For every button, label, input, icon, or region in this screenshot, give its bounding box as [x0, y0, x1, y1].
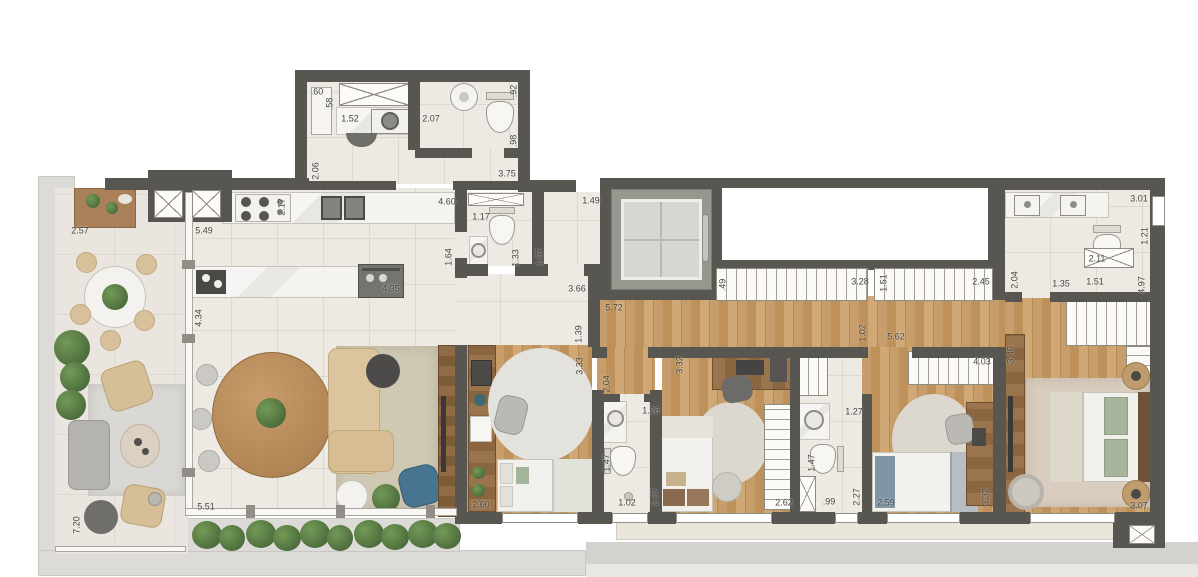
bedroom2-cushion [666, 472, 686, 486]
dimension-label: 2.45 [972, 278, 990, 287]
planter-plant-6 [327, 525, 353, 551]
bedroom2-pillow-2 [687, 489, 709, 506]
cooktop-pan-2 [214, 280, 222, 288]
sideboard-plant-2 [106, 202, 118, 214]
dimension-label: .99 [823, 498, 836, 507]
glass-wall-west [185, 192, 193, 512]
wall [415, 148, 472, 158]
wall [295, 70, 530, 82]
dimension-label: 5.51 [197, 503, 215, 512]
wall [295, 70, 307, 188]
dining-centerpiece [256, 398, 286, 428]
terrace-centerpiece [102, 284, 128, 310]
glass-mullion [182, 334, 195, 343]
tall-unit-handle [362, 268, 400, 271]
dimension-label: 2.17 [278, 198, 287, 216]
floor-plan-canvas: .60.581.522.07.92.982.063.754.602.575.49… [0, 0, 1198, 577]
dimension-label: 3.07 [1130, 502, 1148, 511]
wall [455, 190, 467, 232]
master-entry-closet [1066, 301, 1152, 346]
sideboard-plant-1 [86, 194, 100, 208]
terrace-armchair-2 [119, 483, 167, 530]
wall [772, 512, 835, 524]
bedroom2-desk-items [770, 358, 787, 382]
wall [790, 347, 800, 514]
dimension-label: 2.04 [603, 375, 612, 393]
wall [960, 512, 1030, 524]
dimension-label: 3.33 [576, 357, 585, 375]
drying-rack [339, 83, 409, 106]
dimension-label: .98 [510, 135, 519, 148]
wall [230, 178, 309, 190]
window [502, 513, 578, 523]
dimension-label: 1.39 [575, 325, 584, 343]
bedroom2-pouf [712, 472, 742, 502]
planter-plant-4 [273, 525, 301, 551]
kitchen-door-floor [455, 230, 467, 260]
wall [592, 347, 604, 358]
dimension-label: 1.64 [445, 248, 454, 266]
dimension-label: .58 [326, 98, 335, 111]
planter-plant-2 [219, 525, 245, 551]
terrace-plant-1 [54, 330, 90, 366]
wall [578, 512, 612, 524]
wall [722, 178, 1000, 188]
dimension-label: 1.47 [603, 454, 612, 472]
void-area [722, 188, 988, 260]
wall [530, 180, 576, 192]
bedroom3-desk-item [972, 428, 986, 446]
wall [455, 345, 467, 514]
bedroom1-desk-tv [471, 360, 492, 386]
terrace-plant-2 [60, 362, 90, 392]
dimension-label: 4.97 [1138, 276, 1147, 294]
bathroom2-sink [804, 410, 824, 430]
bedroom2-pillow-1 [663, 489, 685, 506]
dimension-label: 1.17 [472, 213, 490, 222]
bathroom2-bench [798, 476, 816, 512]
dimension-label: 1.02 [859, 324, 868, 342]
terrace-railing [55, 546, 186, 552]
dimension-label: 5.49 [195, 227, 213, 236]
glass-mullion [182, 260, 195, 269]
glass-mullion [426, 505, 435, 518]
living-sofa-chaise [328, 430, 394, 472]
bedroom1-desk-plant-2 [472, 484, 485, 497]
wall [993, 347, 1005, 514]
right-walkway-band-light [586, 564, 1198, 577]
dimension-label: 4.35 [382, 285, 400, 294]
bedroom1-desk-item [474, 394, 486, 406]
tall-unit-knob-1 [366, 274, 374, 282]
bedroom1-desk-plant-1 [472, 466, 485, 479]
master-blanket [1050, 392, 1084, 482]
powder-sink [471, 243, 486, 258]
powder-shelf [468, 193, 524, 206]
right-walkway-band [586, 540, 1198, 564]
wall [455, 264, 488, 276]
living-side-table-dark [366, 354, 400, 388]
shaft-box-1 [154, 190, 183, 218]
window-ledge [616, 521, 1158, 540]
corridor-closet-1 [716, 268, 868, 301]
dimension-label: 2.27 [853, 488, 862, 506]
master-armchair [1008, 474, 1044, 510]
wall [455, 512, 502, 524]
terrace-coffee-table [120, 424, 160, 468]
dimension-label: 3.32 [676, 356, 685, 374]
wall [1005, 292, 1022, 302]
dimension-label: 4.03 [973, 358, 991, 367]
planter-plant-3 [246, 520, 276, 548]
cooktop-pan-1 [202, 274, 210, 282]
window [887, 513, 960, 523]
dimension-label: 2.04 [1011, 271, 1020, 289]
dimension-label: 3.28 [851, 278, 869, 287]
dimension-label: 1.51 [1086, 278, 1104, 287]
master-sink-1-drain [1024, 201, 1031, 208]
glass-mullion [336, 505, 345, 518]
wall [588, 276, 600, 347]
dimension-label: 1.27 [845, 408, 863, 417]
terrace-chair-1 [76, 252, 97, 273]
bedroom2-monitor [736, 360, 764, 375]
dimension-label: 1.49 [582, 197, 600, 206]
stove-burner-2 [259, 197, 269, 207]
wall [858, 512, 887, 524]
dimension-label: 7.20 [73, 516, 82, 534]
dimension-label: 1.67 [536, 248, 545, 266]
wall [1150, 178, 1165, 546]
glass-wall-south [185, 508, 457, 516]
master-nightstand-1-lamp [1131, 371, 1141, 381]
master-tv [1008, 396, 1013, 472]
dimension-label: 2.60 [472, 501, 490, 510]
dimension-label: 2.57 [71, 227, 89, 236]
wall [604, 394, 620, 402]
wall [453, 181, 530, 190]
service-passage-floor [307, 148, 518, 184]
wall [105, 178, 150, 190]
dimension-label: 3.66 [568, 285, 586, 294]
dimension-label: 1.02 [618, 499, 636, 508]
dimension-label: 2.11 [1089, 255, 1106, 264]
terrace-plant-3 [56, 390, 86, 420]
bedroom1-pillow-2 [500, 486, 513, 507]
sideboard-tray [118, 194, 132, 204]
glass-mullion [246, 505, 255, 518]
corridor-floor [598, 296, 1005, 347]
washer-drum [381, 112, 399, 130]
planter-plant-10 [433, 523, 461, 549]
master-headboard [1138, 392, 1150, 482]
dimension-label: 1.33 [512, 249, 521, 267]
dimension-label: 3.46 [1007, 346, 1016, 364]
dining-chair-2 [190, 408, 212, 430]
dimension-label: 2.59 [877, 499, 895, 508]
dimension-label: .92 [510, 85, 519, 98]
wall [592, 390, 604, 514]
elevator-cab-mullion-h [624, 239, 699, 241]
shaft-box-2 [192, 190, 221, 218]
wall [1050, 292, 1150, 302]
master-toilet-tank [1093, 225, 1121, 233]
dimension-label: 3.01 [1130, 195, 1148, 204]
master-sink-2-drain [1070, 201, 1077, 208]
planter-plant-8 [381, 524, 409, 550]
window [1030, 513, 1115, 523]
coffee-table-item-2 [142, 448, 149, 455]
dimension-label: 4.34 [195, 309, 204, 327]
dimension-label: 3.32 [982, 488, 991, 506]
corner-vent [1129, 525, 1155, 544]
terrace-chair-3 [70, 304, 91, 325]
bedroom1-blanket [552, 459, 592, 512]
master-pillow-2 [1104, 439, 1128, 477]
bedroom2-blanket [660, 416, 713, 438]
master-bath-window [1152, 196, 1165, 226]
wall [650, 347, 662, 358]
glass-mullion [182, 468, 195, 477]
top-bath-basin-drain [459, 92, 469, 102]
living-tv [441, 396, 446, 472]
dining-chair-3 [198, 450, 220, 472]
terrace-pouf [84, 500, 118, 534]
dimension-label: 1.47 [808, 454, 817, 472]
wall [993, 178, 1165, 190]
dimension-label: 1.35 [1052, 280, 1070, 289]
kitchen-sink-1 [321, 196, 342, 220]
terrace-lamp [148, 492, 162, 506]
terrace-chair-2 [136, 254, 157, 275]
dimension-label: 2.27 [651, 488, 660, 506]
dimension-label: 1.51 [880, 274, 889, 292]
dimension-label: 2.62 [775, 499, 793, 508]
terrace-chair-4 [134, 310, 155, 331]
wall [644, 394, 662, 402]
wall [648, 512, 676, 524]
dimension-label: 2.07 [422, 115, 440, 124]
powder-toilet-tank [489, 207, 515, 214]
bedroom2-closet [764, 404, 792, 510]
window [835, 513, 858, 523]
terrace-chair-5 [100, 330, 121, 351]
elevator-door [702, 214, 709, 262]
wall [307, 181, 396, 190]
dimension-label: 1.21 [1141, 227, 1150, 245]
master-nightstand-2-lamp [1131, 489, 1141, 499]
planter-plant-7 [354, 520, 384, 548]
planter-plant-5 [300, 520, 330, 548]
dimension-label: .60 [311, 88, 324, 97]
dimension-label: 5.62 [887, 333, 905, 342]
window [676, 513, 772, 523]
kitchen-sink-2 [344, 196, 365, 220]
dimension-label: 4.60 [438, 198, 456, 207]
dimension-label: 1.52 [341, 115, 359, 124]
stove-burner-3 [241, 211, 251, 221]
dimension-label: 3.75 [498, 170, 516, 179]
dimension-label: 5.72 [605, 304, 623, 313]
stove-burner-1 [241, 197, 251, 207]
window [612, 513, 648, 523]
bedroom1-desk-paper [470, 416, 492, 442]
stove-burner-4 [259, 211, 269, 221]
dimension-label: .49 [719, 279, 728, 292]
terrace-sofa [68, 420, 110, 490]
dimension-label: 2.06 [312, 162, 321, 180]
bedroom1-pillow-1 [500, 463, 513, 484]
dimension-label: 1.28 [642, 407, 660, 416]
planter-plant-1 [192, 521, 222, 549]
tall-unit-knob-2 [379, 274, 387, 282]
wall [584, 264, 600, 276]
bathroom2-toilet-tank [837, 446, 844, 472]
dining-chair-1 [196, 364, 218, 386]
master-pillow-1 [1104, 397, 1128, 435]
coffee-table-item-1 [134, 438, 142, 446]
wall [408, 82, 420, 150]
bedroom1-cushion [516, 467, 529, 484]
wall [504, 148, 530, 158]
wall [862, 394, 872, 514]
bathroom1-sink [607, 410, 624, 427]
